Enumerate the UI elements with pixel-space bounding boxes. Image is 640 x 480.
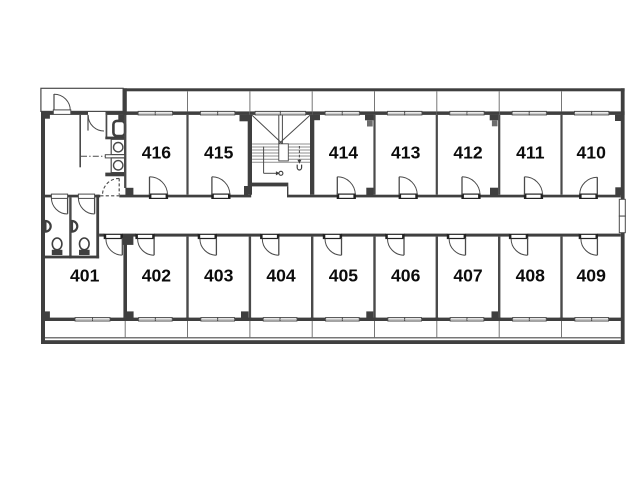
svg-text:415: 415: [204, 142, 234, 162]
svg-text:409: 409: [577, 266, 607, 286]
svg-text:410: 410: [577, 142, 607, 162]
svg-text:408: 408: [516, 266, 546, 286]
svg-text:416: 416: [142, 142, 172, 162]
svg-text:412: 412: [453, 142, 483, 162]
svg-text:405: 405: [329, 266, 359, 286]
svg-text:413: 413: [391, 142, 421, 162]
svg-text:403: 403: [204, 266, 234, 286]
svg-text:402: 402: [142, 266, 172, 286]
svg-text:406: 406: [391, 266, 421, 286]
svg-text:414: 414: [329, 142, 359, 162]
svg-text:407: 407: [453, 266, 483, 286]
svg-text:404: 404: [266, 266, 296, 286]
svg-text:401: 401: [70, 266, 100, 286]
svg-text:411: 411: [516, 142, 545, 162]
